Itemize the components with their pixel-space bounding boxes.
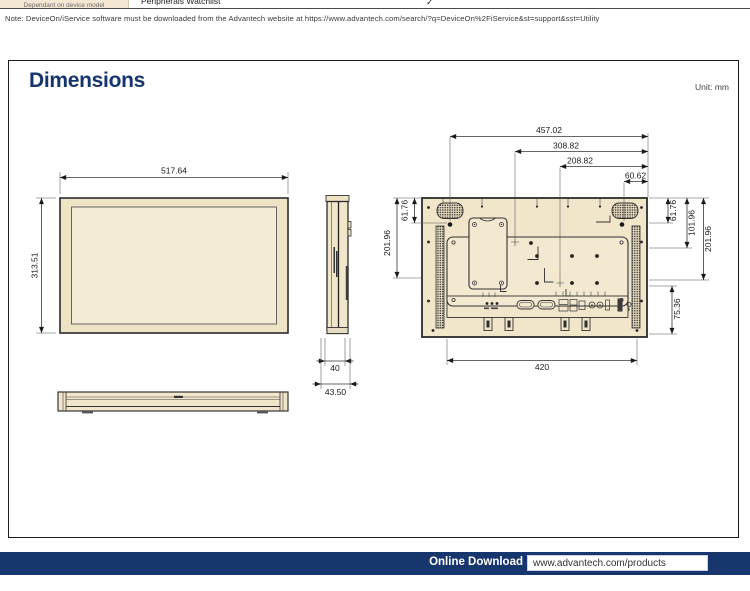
- dim-side-depth: 43.50: [325, 387, 347, 397]
- dim-rear-right-top: 61.76: [668, 200, 678, 222]
- dim-side-width: 40: [330, 363, 340, 373]
- side-view-drawing: 40 43.50: [313, 196, 359, 398]
- dim-front-width: 517.64: [161, 166, 187, 176]
- footer-url-box: www.advantech.com/products: [527, 555, 708, 571]
- mount-rail-left: [436, 226, 444, 328]
- dim-front-height: 313.51: [30, 252, 40, 278]
- dim-rear-mid: 308.82: [553, 141, 579, 151]
- dim-rear-right-span: 201.96: [703, 226, 713, 252]
- footer-url: www.advantech.com/products: [533, 558, 666, 569]
- footer-bar: Online Download www.advantech.com/produc…: [0, 552, 750, 575]
- dim-rear-left-span: 201.96: [382, 230, 392, 256]
- mount-plate-small: [469, 218, 507, 289]
- rear-view-drawing: 457.02 308.82 208.82 60.62 61.76 201.96 …: [382, 125, 713, 372]
- mount-rail-right: [632, 226, 640, 328]
- dim-rear-right-mid: 101.96: [687, 210, 697, 236]
- speaker-grille-right: [612, 203, 638, 219]
- bottom-view-drawing: [58, 392, 288, 413]
- dim-rear-left-top: 61.76: [400, 200, 410, 222]
- dim-rear-offset: 60.62: [625, 171, 647, 181]
- mount-screw-left: [448, 222, 453, 227]
- technical-drawing: 517.64 313.51 40 43.50: [0, 0, 750, 591]
- mount-screw-right: [620, 222, 625, 227]
- front-view-drawing: 517.64 313.51: [30, 166, 289, 334]
- dim-rear-bottom-offset: 75.36: [672, 298, 682, 320]
- dim-rear-inner: 208.82: [567, 156, 593, 166]
- dim-rear-bottom-width: 420: [535, 362, 549, 372]
- online-download-label: Online Download: [429, 556, 523, 568]
- dim-rear-top: 457.02: [536, 125, 562, 135]
